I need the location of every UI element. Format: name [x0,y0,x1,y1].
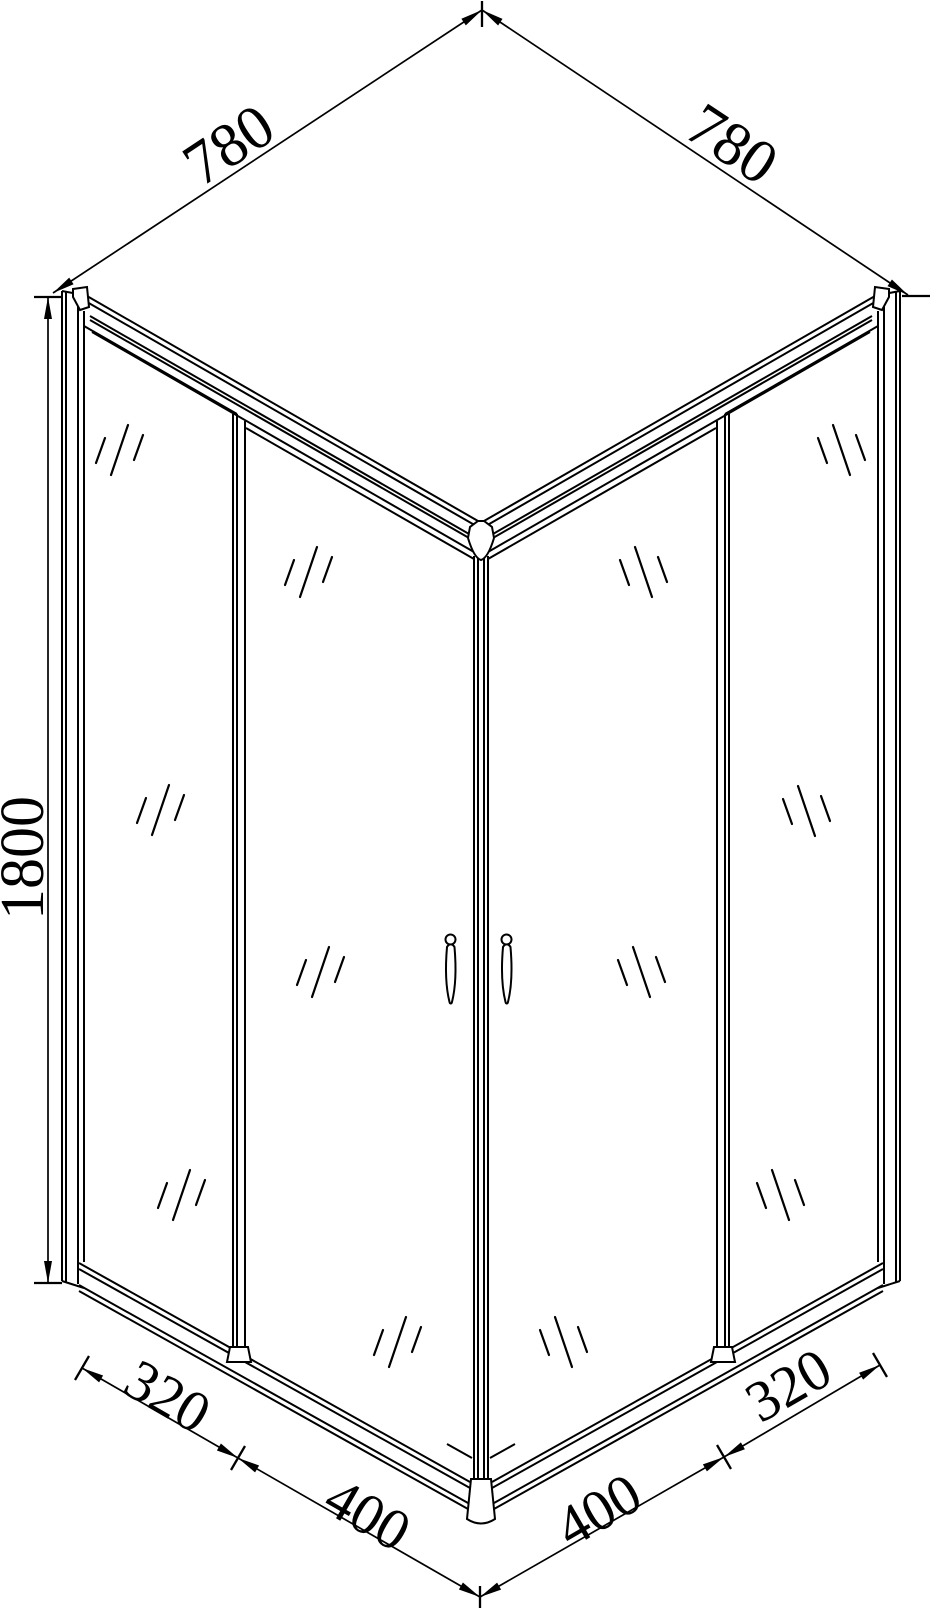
right-mullion-foot [711,1347,735,1362]
corner-post-cap [468,521,494,560]
dimension-lines: 780 780 1800 320 400 400 320 [0,1,930,1608]
left-wall-cap [73,287,89,310]
glass-hatch-right-fixed-top [818,425,865,475]
glass-hatch-left-fixed-top [96,425,143,475]
left-mullion-foot [227,1347,251,1362]
glass-hatch-right-door-bottom [540,1317,587,1367]
technical-drawing-canvas: 780 780 1800 320 400 400 320 [0,0,934,1608]
glass-hatch-right-door-top [620,547,667,597]
glass-hatch-right-door-middle [618,947,665,997]
glass-hatch-left-door-top [285,547,332,597]
left-mullion [233,414,245,1347]
right-door-handle-knob [502,935,512,945]
glass-hatch-left-fixed-middle [137,785,184,835]
right-wall-post [878,291,900,1288]
dim-label-top-right-780: 780 [674,90,789,198]
enclosure-structure [62,287,900,1524]
shower-enclosure-diagram: 780 780 1800 320 400 400 320 [0,0,934,1608]
right-mullion [717,414,729,1347]
dim-label-top-left-780: 780 [171,91,286,199]
right-wall-cap [873,287,889,310]
corner-post-foot [467,1479,495,1524]
left-door-handle [446,944,456,1003]
glass-hatch-marks [96,425,865,1367]
left-top-rail [84,296,478,559]
dim-label-bottom-left-400: 400 [314,1464,422,1564]
left-wall-post [62,291,84,1288]
glass-hatch-left-door-middle [297,947,344,997]
dim-label-bottom-right-320: 320 [734,1335,842,1435]
glass-hatch-right-fixed-bottom [757,1170,804,1220]
right-door-handle [502,944,512,1003]
dim-label-bottom-right-400: 400 [544,1460,652,1560]
corner-post [474,556,488,1480]
left-door-handle-knob [446,935,456,945]
dim-label-height-1800: 1800 [0,796,57,920]
glass-hatch-left-fixed-bottom [158,1170,205,1220]
glass-hatch-left-door-bottom [374,1317,421,1367]
glass-hatch-right-fixed-middle [783,786,830,836]
right-top-rail [484,296,878,559]
